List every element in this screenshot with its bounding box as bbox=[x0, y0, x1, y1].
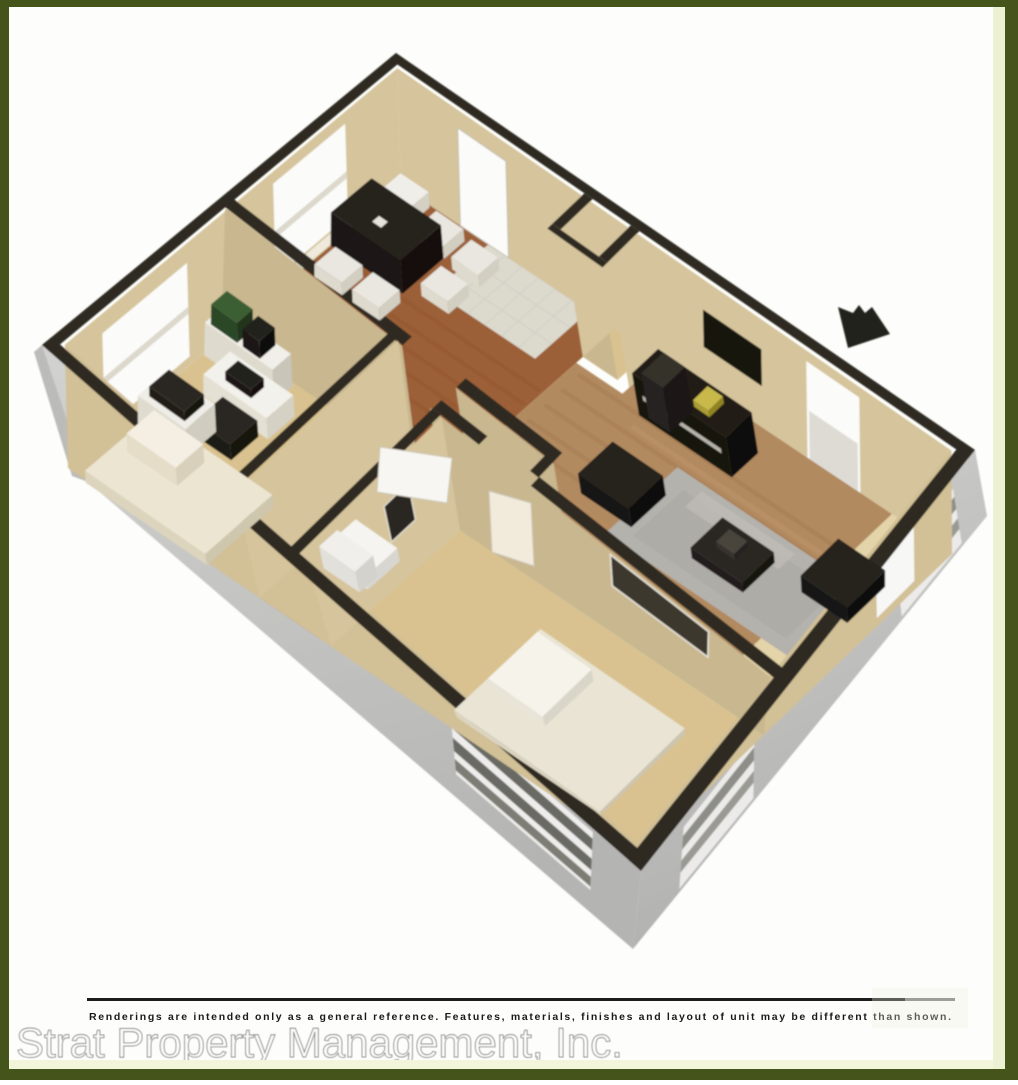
svg-text:Strat Property Management, Inc: Strat Property Management, Inc. bbox=[16, 1019, 623, 1066]
